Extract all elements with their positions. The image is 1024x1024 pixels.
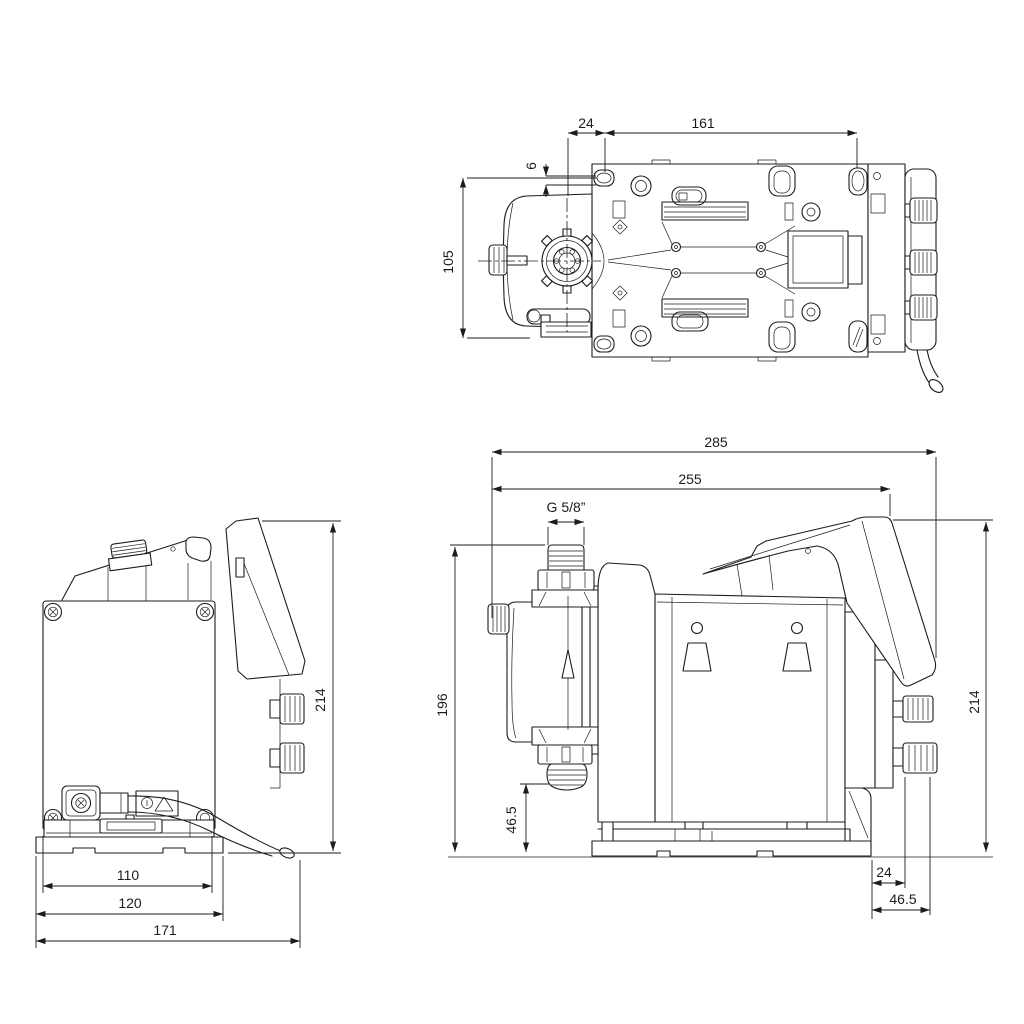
dim-label-196: 196: [434, 693, 450, 717]
motor-body-side: [655, 594, 845, 822]
pump-head-top: [478, 194, 601, 337]
dim-label-110: 110: [117, 867, 140, 883]
bleed-knob-side: [488, 604, 509, 634]
dim-label-120: 120: [118, 895, 142, 911]
base-side: [592, 818, 871, 856]
pump-front-housing-side: [598, 563, 655, 822]
dim-label-214-side: 214: [966, 690, 982, 714]
side-view: 285 255 G 5/8” 196 46.5 214 24 46.5: [434, 434, 993, 919]
dim-label-24-side: 24: [876, 864, 892, 880]
panel-screw-top-left: [45, 604, 62, 621]
rear-connectors-side: [893, 696, 937, 773]
dim-label-465-left: 46.5: [503, 806, 519, 833]
connector-plug-1-top: [905, 198, 937, 223]
dim-label-171: 171: [153, 922, 177, 938]
pump-dimension-drawing: 24 161 6 105: [0, 0, 1024, 1024]
top-view: 24 161 6 105: [440, 115, 945, 395]
suction-valve-side: [532, 727, 598, 790]
drawing-canvas: 24 161 6 105: [0, 0, 1024, 1024]
dim-label-214-back: 214: [312, 688, 328, 712]
dim-label-thread: G 5/8”: [547, 499, 586, 515]
power-cable-top: [917, 350, 945, 395]
back-view: 214 110 120 171: [36, 518, 341, 948]
base-back: [36, 815, 223, 853]
discharge-valve-side: [532, 545, 598, 607]
panel-screw-top-right: [197, 604, 214, 621]
head-bracket-top: [527, 309, 591, 337]
control-unit-top: [868, 164, 945, 395]
dim-label-285: 285: [704, 434, 728, 450]
dim-label-105: 105: [440, 250, 456, 274]
housing-top-back: [62, 537, 211, 601]
dim-label-6: 6: [523, 162, 539, 170]
panel-indicator-dot: [806, 549, 811, 554]
mounting-plate-top: [592, 160, 868, 361]
dim-label-255: 255: [678, 471, 702, 487]
dosing-head-side: [488, 545, 598, 790]
connector-plug-3-top: [905, 295, 937, 320]
dim-label-24-top: 24: [578, 115, 594, 131]
discharge-fitting-back: [107, 539, 152, 571]
control-panel-back: [226, 518, 305, 679]
connector-plug-2-top: [905, 250, 937, 275]
rear-connectors-back: [270, 679, 304, 788]
dim-label-161: 161: [691, 115, 715, 131]
dim-label-465-right: 46.5: [889, 891, 916, 907]
